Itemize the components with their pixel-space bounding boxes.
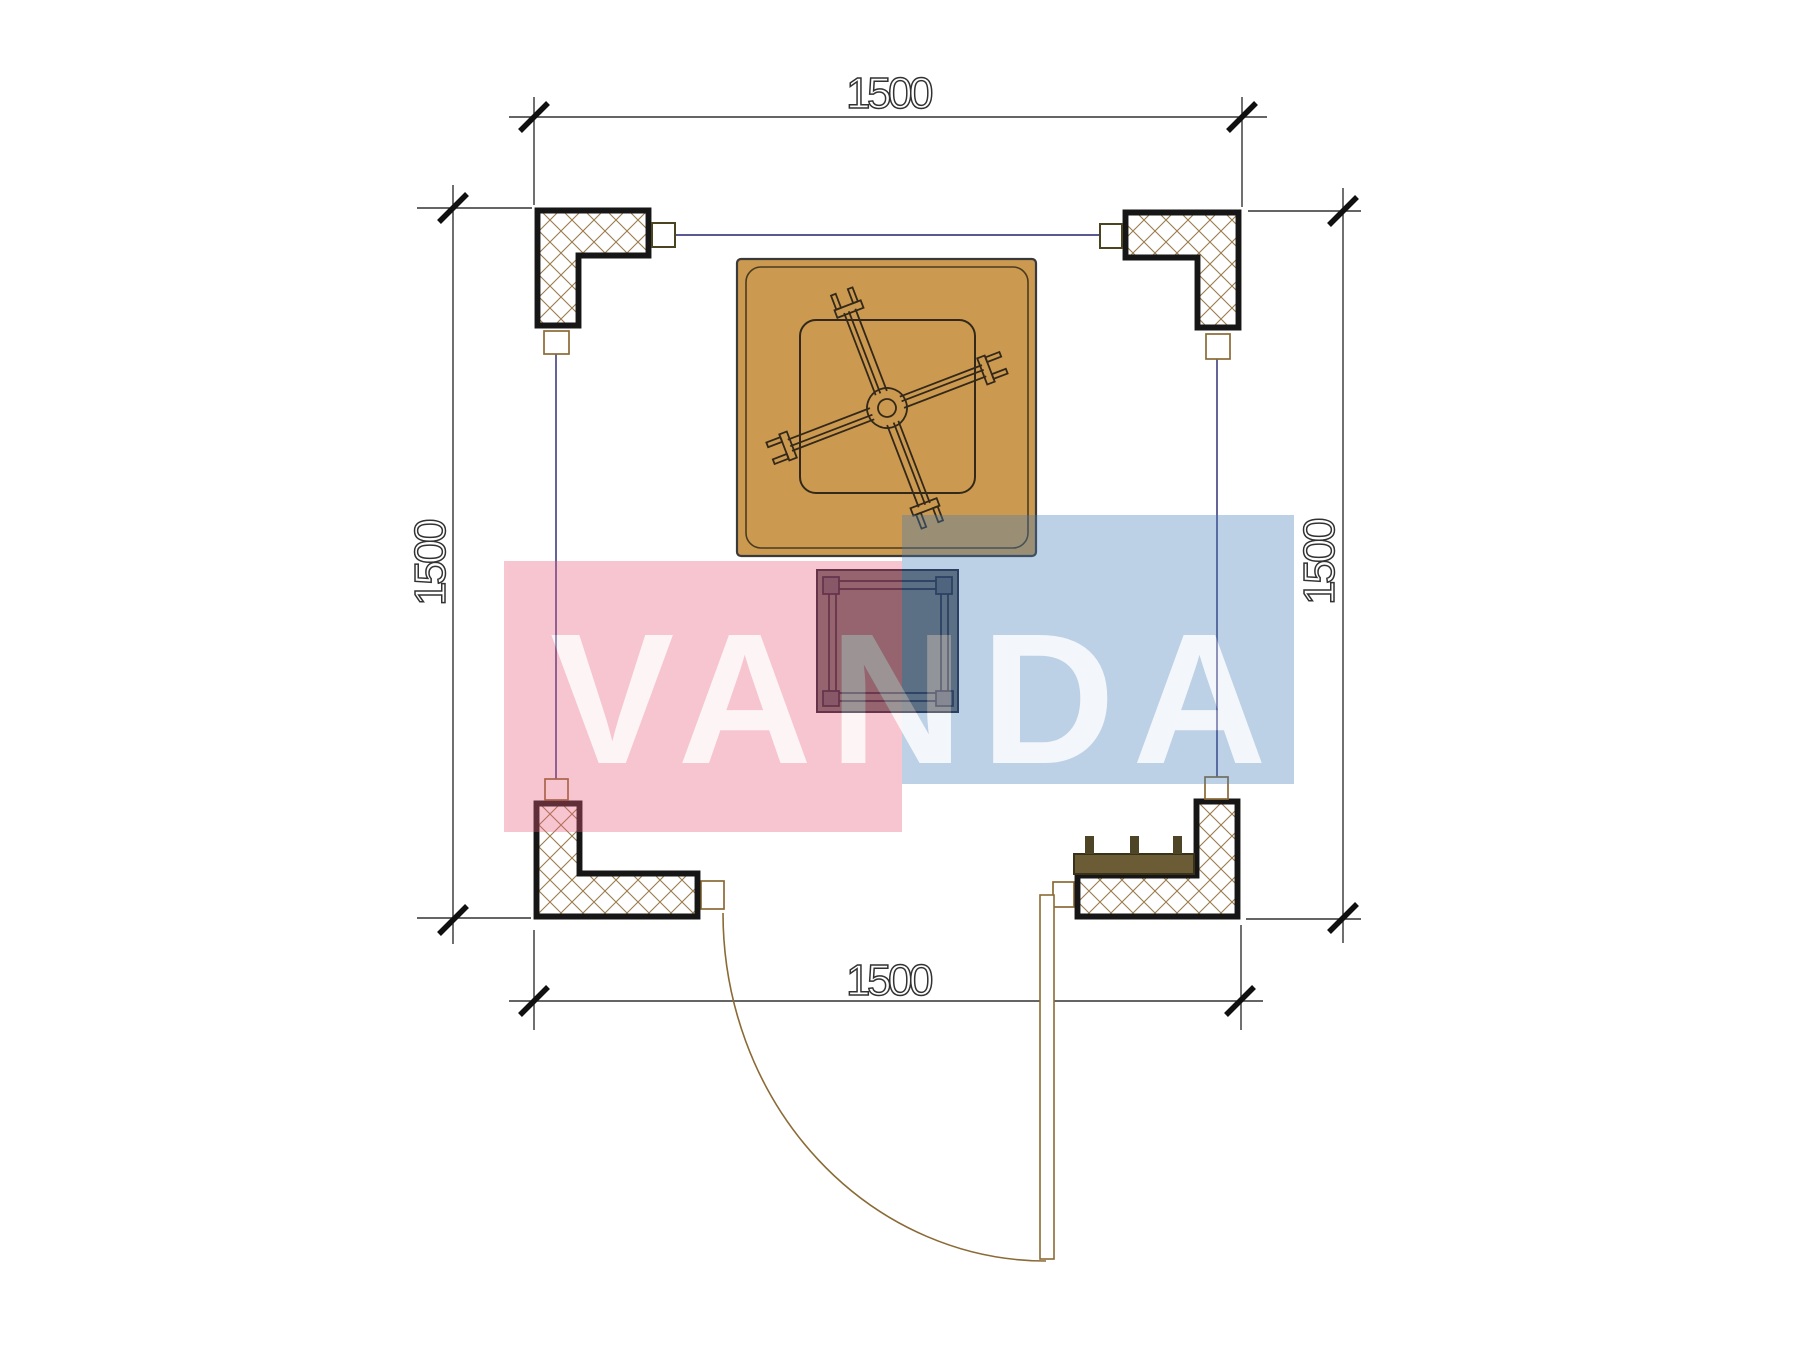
svg-text:1500: 1500 <box>1295 519 1344 605</box>
svg-text:1500: 1500 <box>846 956 932 1005</box>
svg-text:1500: 1500 <box>846 69 932 118</box>
svg-text:1500: 1500 <box>406 520 455 606</box>
svg-text:VANDA: VANDA <box>550 596 1284 803</box>
